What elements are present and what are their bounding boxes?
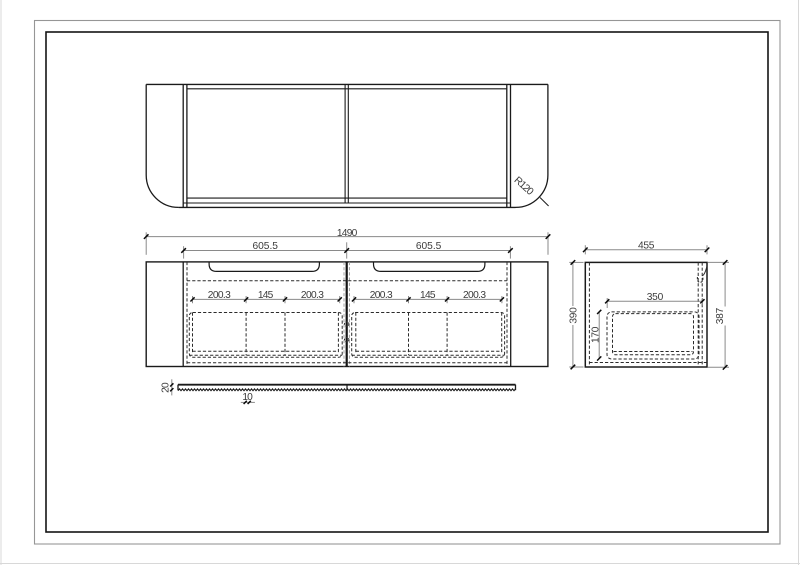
svg-text:1490: 1490	[337, 228, 358, 239]
svg-text:200.3: 200.3	[463, 290, 486, 301]
svg-text:10: 10	[242, 392, 253, 403]
svg-text:200.3: 200.3	[301, 290, 324, 301]
svg-text:20: 20	[160, 382, 171, 393]
svg-text:390: 390	[569, 307, 580, 324]
svg-text:200.3: 200.3	[370, 290, 393, 301]
svg-text:350: 350	[647, 292, 664, 303]
svg-text:605.5: 605.5	[416, 241, 442, 252]
svg-text:145: 145	[420, 290, 436, 301]
svg-text:200.3: 200.3	[208, 290, 231, 301]
svg-text:145: 145	[258, 290, 274, 301]
svg-text:455: 455	[638, 240, 655, 251]
svg-text:605.5: 605.5	[252, 241, 278, 252]
svg-text:170: 170	[591, 326, 602, 343]
svg-text:387: 387	[715, 307, 726, 324]
